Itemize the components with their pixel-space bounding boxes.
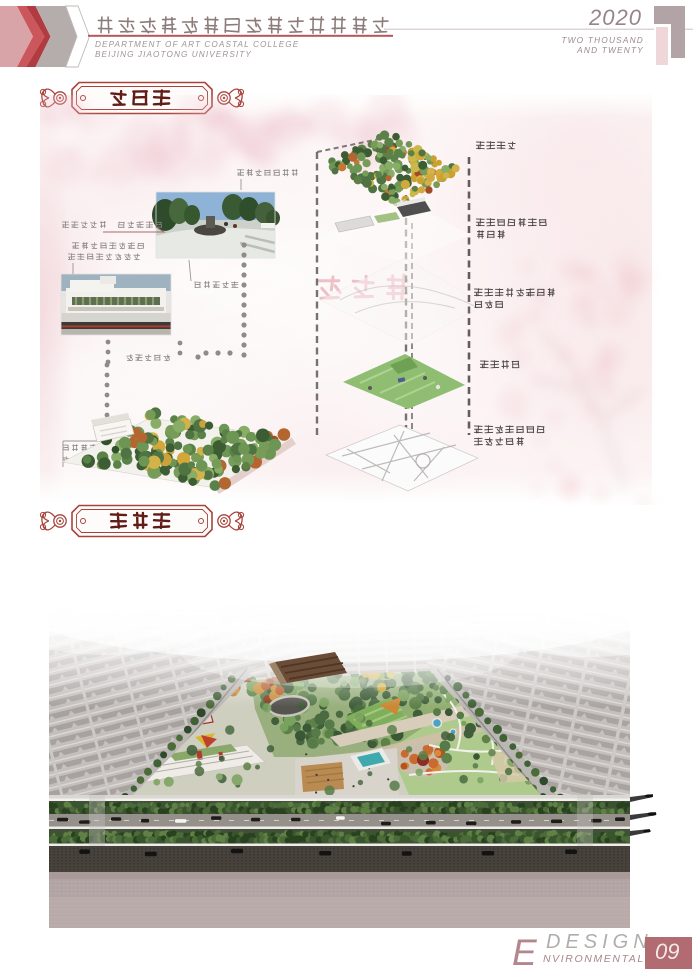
svg-text:2020: 2020 (588, 5, 642, 30)
svg-text:TWO THOUSAND: TWO THOUSAND (561, 35, 644, 45)
svg-text:DEPARTMENT OF ART COASTAL COLL: DEPARTMENT OF ART COASTAL COLLEGE (95, 40, 299, 49)
svg-text:AND TWENTY: AND TWENTY (576, 45, 644, 55)
svg-text:BEIJING JIAOTONG UNIVERSITY: BEIJING JIAOTONG UNIVERSITY (95, 50, 252, 59)
